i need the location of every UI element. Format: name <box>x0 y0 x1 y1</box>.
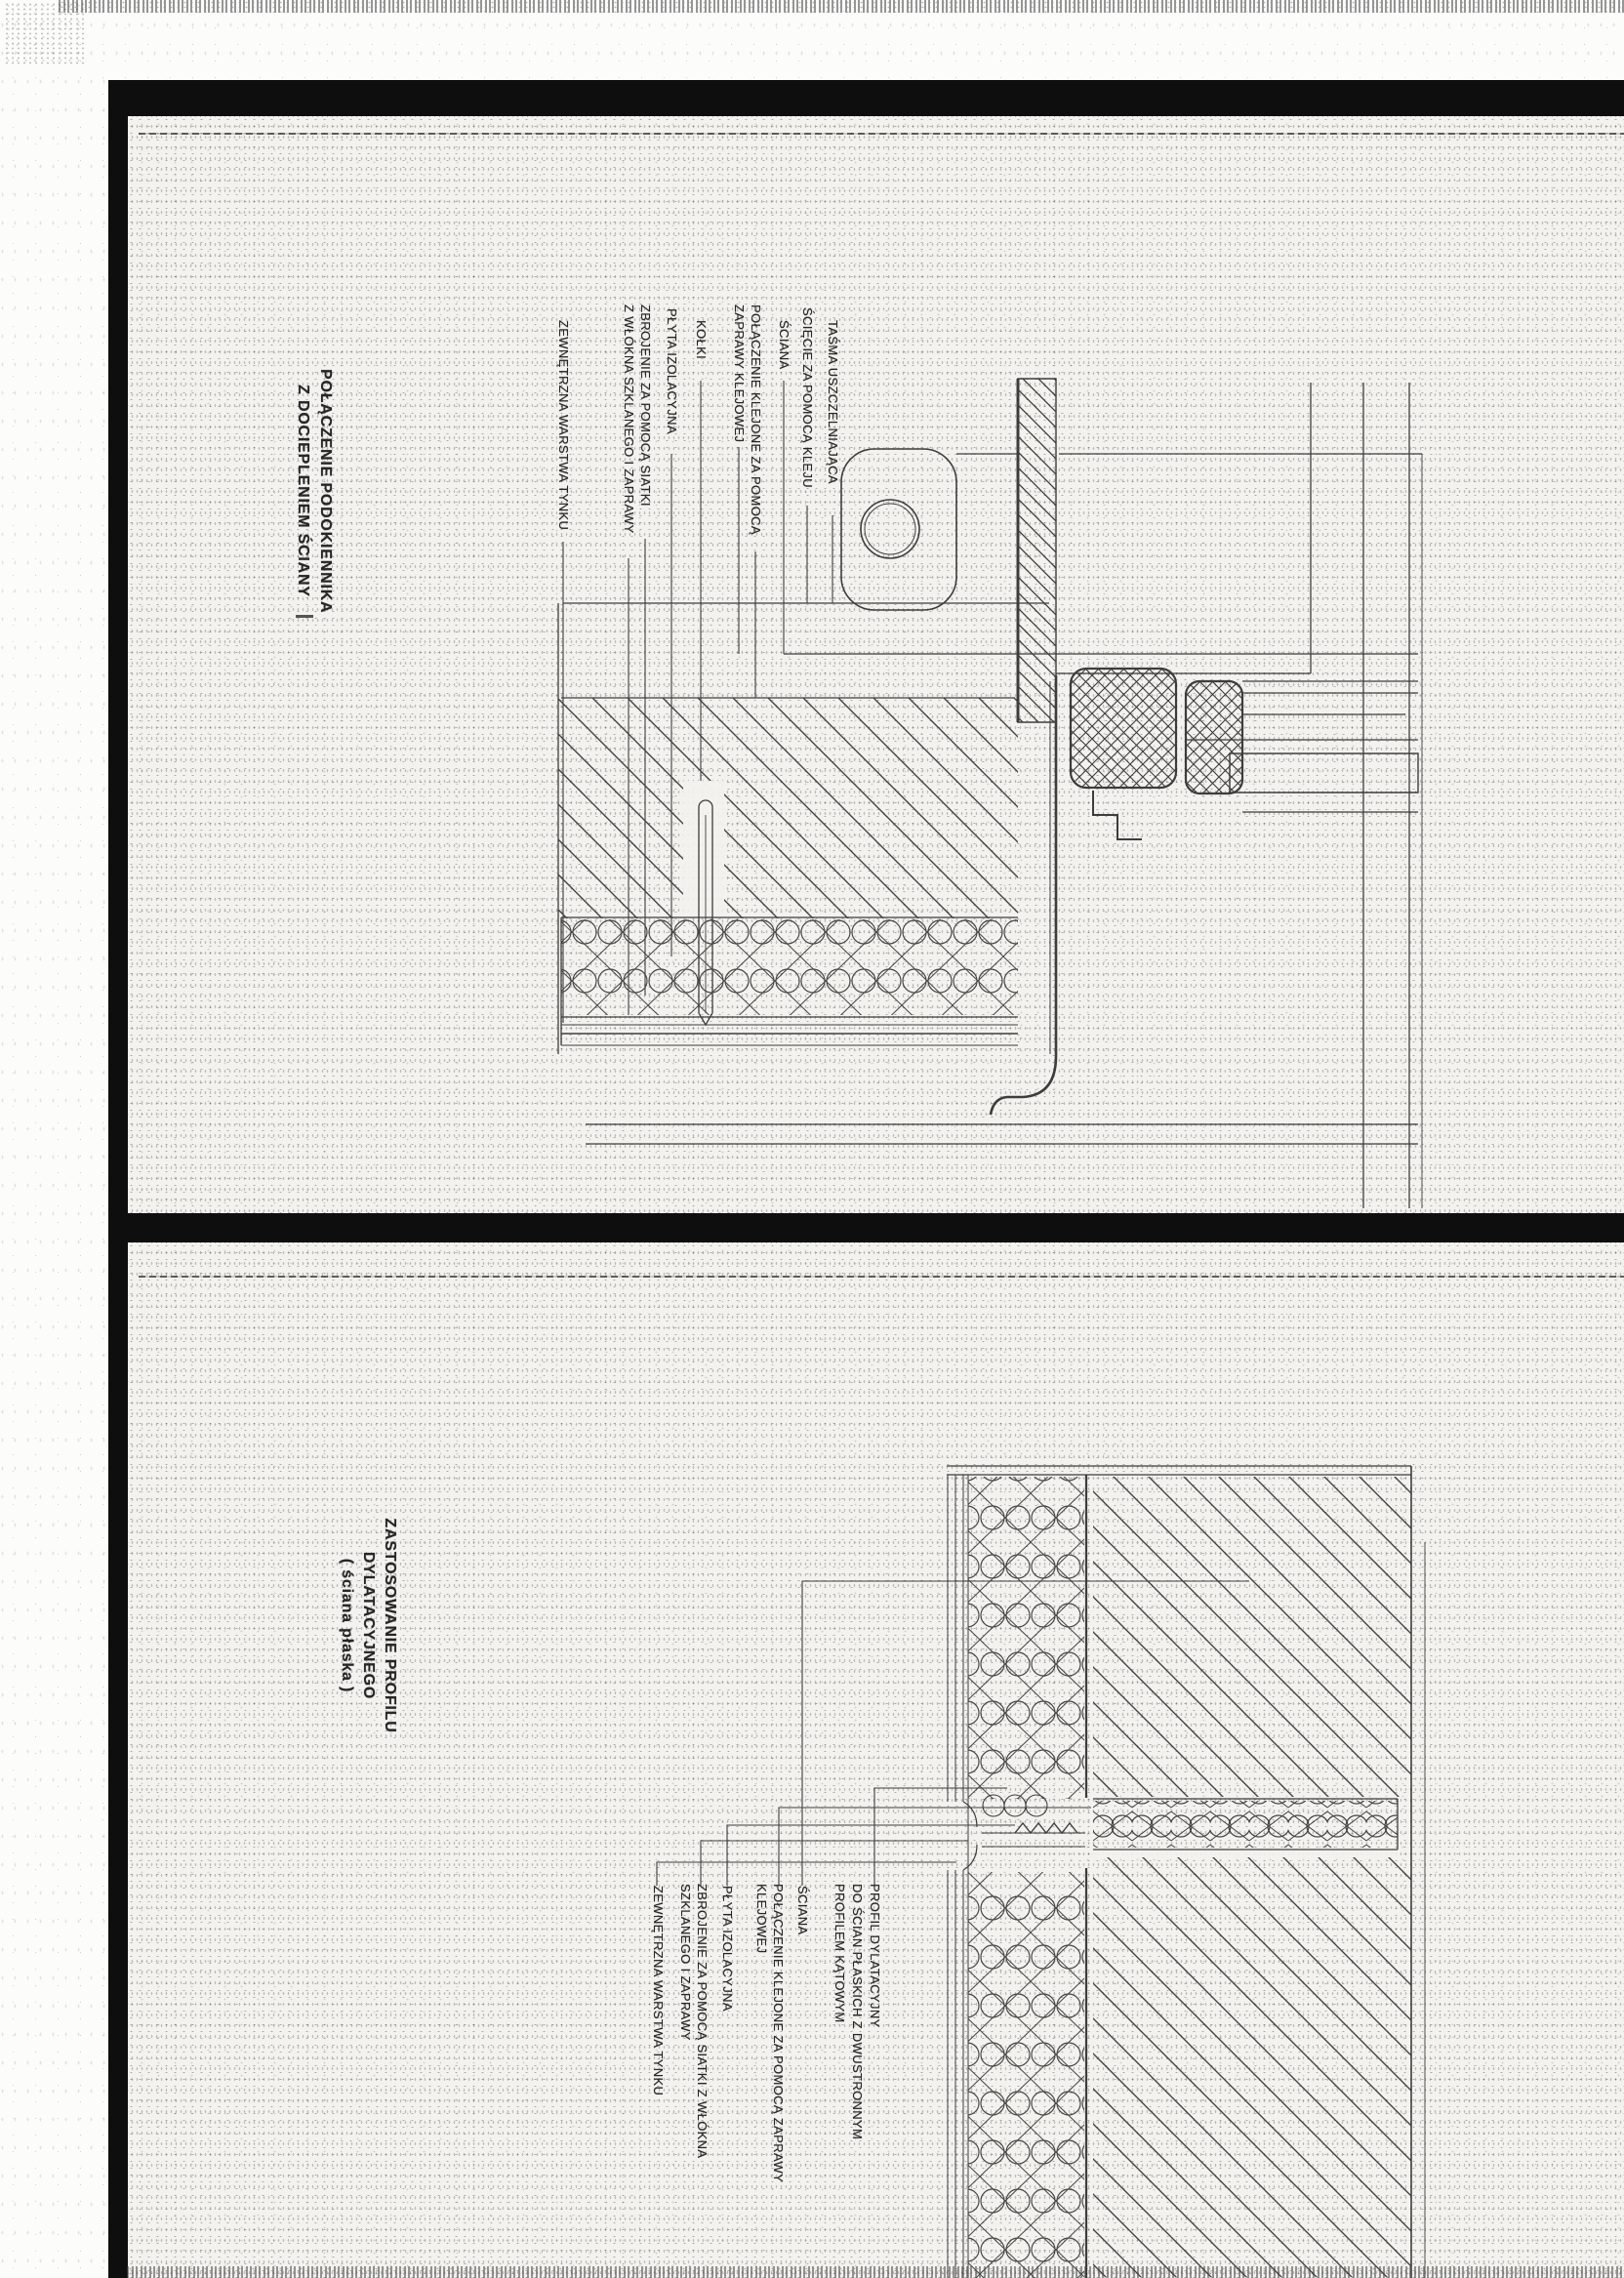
page-2-title-line-2: DYLATACYJNEGO <box>357 1506 379 1745</box>
page-1-title-underline <box>296 615 313 618</box>
callout-profil-dylatacyjny-c: PROFILEM KĄTOWYM <box>832 1884 846 2023</box>
callout-zbrojenie-2a: ZBROJENIE ZA POMOCĄ SIATKI Z WŁÓKNA <box>695 1884 709 2158</box>
page-1-edge-bar <box>108 80 1624 116</box>
insulation-hatch-2a <box>968 1477 1084 1799</box>
callout-sciana-2: ŚCIANA <box>795 1886 809 1935</box>
wall-hatch-2a <box>1093 1477 1411 1797</box>
callout-polaczenie-klejone-2b: KLEJOWEJ <box>754 1884 768 1953</box>
callout-sciecie: ŚCIĘCIE ZA POMOCĄ KLEJU <box>800 307 814 488</box>
facade-face-lines-1 <box>1363 383 1422 1208</box>
page-2-title-line-1: ZASTOSOWANIE PROFILU <box>379 1506 400 1745</box>
rondel-plate <box>841 449 956 610</box>
joint-filler-band <box>1093 1799 1398 1857</box>
callout-kolki: KOŁKI <box>694 320 708 359</box>
windowsill-detail-drawing <box>547 371 1425 1210</box>
callout-sciana-1: ŚCIANA <box>777 320 791 370</box>
scan-noise-bottom-edge <box>127 2266 1624 2278</box>
insulation-hatch-2b <box>968 1872 1084 2278</box>
page-2-edge-bar <box>108 1213 1624 1242</box>
insulation-hatch-1 <box>561 919 1018 1015</box>
page-2-rule <box>139 1276 1624 1278</box>
scanned-document: POŁĄCZENIE PODOKIENNIKA Z DOCIEPLENIEM Ś… <box>0 0 1624 2278</box>
callout-zewnetrzna-warstwa-2: ZEWNĘTRZNA WARSTWA TYNKU <box>651 1886 665 2095</box>
sill-upstand-bar <box>1018 379 1056 722</box>
frame-seal-blocks <box>1071 669 1242 839</box>
callout-polaczenie-klejone-1a: POŁĄCZENIE KLEJONE ZA POMOCĄ <box>749 305 762 535</box>
facade-face-lines-2 <box>1411 1466 1425 2278</box>
page-1-title-line-1: POŁĄCZENIE PODOKIENNIKA <box>314 369 337 613</box>
base-lines-1 <box>586 1124 1418 1144</box>
wall-hatch-2b <box>1093 1854 1411 2277</box>
expansion-joint-detail-drawing <box>625 1444 1435 2278</box>
dowel-channel <box>683 781 724 918</box>
page-1-title-line-2: Z DOCIEPLENIEM ŚCIANY <box>292 369 314 613</box>
page-1-rule <box>139 133 1624 135</box>
page-2-title: ZASTOSOWANIE PROFILU DYLATACYJNEGO ( ści… <box>336 1506 400 1745</box>
callout-tasma-uszczelniajaca: TAŚMA USZCZELNIAJĄCA <box>826 320 839 484</box>
wall-hatch-1 <box>558 698 1018 918</box>
callout-zbrojenie-1a: ZBROJENIE ZA POMOCĄ SIATKI <box>638 305 652 507</box>
callout-polaczenie-klejone-1b: ZAPRAWY KLEJOWEJ <box>732 305 746 442</box>
callout-plyta-izolacyjna-2: PŁYTA IZOLACYJNA <box>720 1886 734 2012</box>
scan-noise-top-edge <box>59 0 1624 13</box>
callout-profil-dylatacyjny-b: DO ŚCIAN PŁASKICH Z DWUSTRONNYM <box>850 1884 864 2139</box>
callout-polaczenie-klejone-2a: POŁĄCZENIE KLEJONE ZA POMOCĄ ZAPRAWY <box>771 1884 785 2182</box>
page-1-title: POŁĄCZENIE PODOKIENNIKA Z DOCIEPLENIEM Ś… <box>292 369 337 613</box>
callout-zbrojenie-1b: Z WŁÓKNA SZKLANEGO I ZAPRAWY <box>622 305 635 534</box>
page-2-title-line-3: ( ściana płaska ) <box>336 1506 357 1745</box>
expansion-profile <box>982 1795 1085 1847</box>
callout-zbrojenie-2b: SZKLANEGO I ZAPRAWY <box>678 1884 692 2041</box>
callout-plyta-izolacyjna-1: PŁYTA IZOLACYJNA <box>665 308 678 434</box>
callout-profil-dylatacyjny-a: PROFIL DYLATACYJNY <box>868 1884 881 2028</box>
spine-shadow-bar <box>108 80 128 2278</box>
callout-zewnetrzna-warstwa-1: ZEWNĘTRZNA WARSTWA TYNKU <box>556 320 570 530</box>
